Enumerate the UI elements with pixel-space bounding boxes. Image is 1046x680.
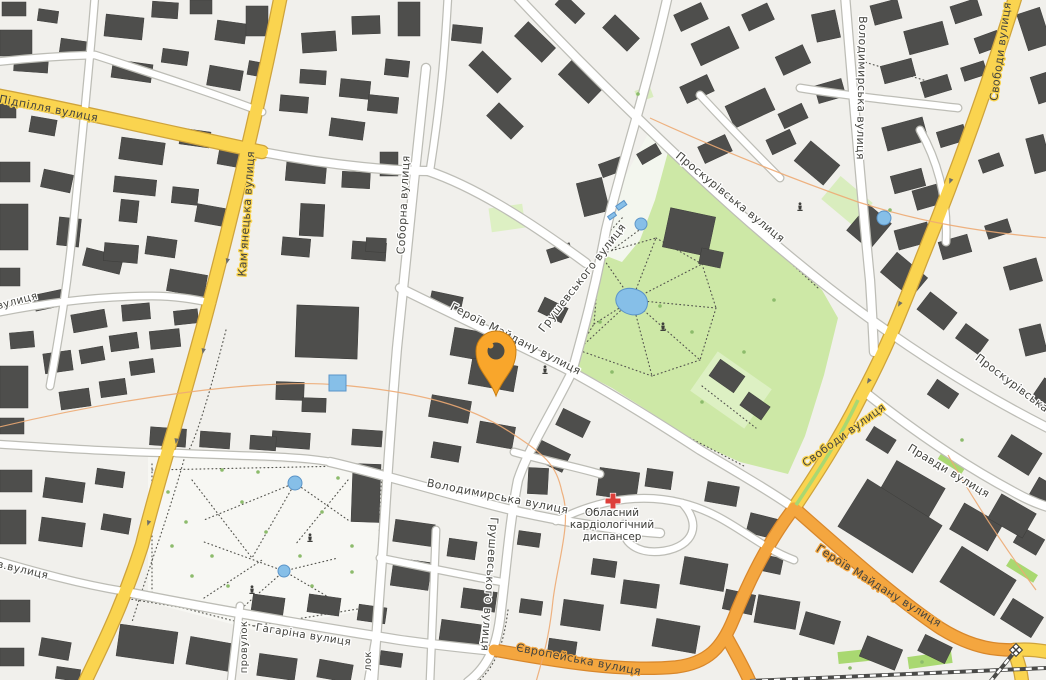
tree-icon xyxy=(610,370,614,374)
tree-icon xyxy=(960,438,964,442)
fountain xyxy=(278,565,290,577)
building xyxy=(295,305,359,359)
statue-body xyxy=(798,206,802,210)
map-canvas[interactable]: Підпілля вулицяКам'янецька вулицяСоборна… xyxy=(0,0,1046,680)
building xyxy=(190,0,212,14)
building xyxy=(215,20,247,44)
tree-icon xyxy=(226,584,230,588)
tree-icon xyxy=(700,400,704,404)
statue-body xyxy=(250,589,254,593)
building xyxy=(366,237,387,252)
street-label: провулок xyxy=(239,621,250,674)
tree-icon xyxy=(742,350,746,354)
street-label: Володимирська вулиця xyxy=(854,16,870,160)
statue-head xyxy=(251,585,254,588)
statue-base xyxy=(797,210,802,211)
building xyxy=(37,9,58,24)
building xyxy=(519,599,543,616)
building xyxy=(0,470,32,492)
fountain xyxy=(877,211,891,225)
building xyxy=(279,95,308,113)
statue-body xyxy=(543,369,547,373)
tree-icon xyxy=(848,666,852,670)
building xyxy=(517,531,541,548)
tree-icon xyxy=(690,330,694,334)
statue-head xyxy=(544,365,547,368)
building xyxy=(621,580,660,609)
statue-body xyxy=(308,537,312,541)
statue-head xyxy=(799,202,802,205)
tree-icon xyxy=(298,554,302,558)
statue-base xyxy=(307,541,312,542)
building xyxy=(451,24,483,43)
building xyxy=(104,14,144,40)
building xyxy=(173,309,198,325)
tree-icon xyxy=(658,304,662,308)
statue-base xyxy=(249,593,254,594)
building xyxy=(301,31,336,53)
tree-icon xyxy=(772,298,776,302)
statue-base xyxy=(542,373,547,374)
building xyxy=(0,204,28,250)
tree-icon xyxy=(310,584,314,588)
building xyxy=(342,171,371,188)
building xyxy=(299,203,325,236)
building xyxy=(352,16,381,35)
tree-icon xyxy=(636,92,640,96)
tree-icon xyxy=(350,570,354,574)
fountain xyxy=(288,476,302,490)
building xyxy=(246,6,268,36)
building xyxy=(0,600,30,622)
tree-icon xyxy=(320,510,324,514)
hospital-label: диспансер xyxy=(583,531,642,543)
tree-icon xyxy=(888,208,892,212)
building xyxy=(0,30,32,56)
building xyxy=(2,2,26,16)
building xyxy=(119,199,139,223)
tree-icon xyxy=(264,530,268,534)
building xyxy=(281,237,310,257)
tree-icon xyxy=(350,544,354,548)
building xyxy=(351,429,382,447)
tree-icon xyxy=(210,554,214,558)
building xyxy=(0,648,24,666)
building xyxy=(121,303,150,321)
building xyxy=(302,398,326,413)
building xyxy=(9,331,34,349)
street-label: лок xyxy=(363,651,374,671)
building xyxy=(0,510,26,544)
tree-icon xyxy=(190,574,194,578)
building xyxy=(367,94,399,113)
tree-icon xyxy=(256,470,260,474)
building xyxy=(171,187,199,206)
building xyxy=(59,388,91,410)
building xyxy=(379,651,403,668)
building xyxy=(591,558,617,577)
tree-icon xyxy=(220,468,224,472)
statue-base xyxy=(660,330,665,331)
building xyxy=(149,328,181,349)
building xyxy=(447,538,477,560)
building xyxy=(560,599,603,630)
building xyxy=(0,366,28,408)
statue-head xyxy=(662,322,665,325)
building xyxy=(398,2,420,36)
building xyxy=(151,1,178,19)
building xyxy=(103,243,138,264)
building xyxy=(250,435,277,451)
statue-head xyxy=(309,533,312,536)
building xyxy=(645,468,673,489)
building xyxy=(271,431,310,450)
pool xyxy=(329,375,346,391)
building xyxy=(145,236,177,258)
tree-icon xyxy=(184,520,188,524)
park-pond xyxy=(635,218,647,230)
building xyxy=(300,69,327,85)
building xyxy=(339,78,371,99)
tree-icon xyxy=(166,490,170,494)
tree-icon xyxy=(920,660,924,664)
building xyxy=(0,268,20,286)
marker-hole-notch[interactable] xyxy=(488,343,494,349)
building xyxy=(129,358,155,375)
statue-body xyxy=(661,326,665,330)
tree-icon xyxy=(170,544,174,548)
tree-icon xyxy=(598,320,602,324)
tree-icon xyxy=(240,500,244,504)
building xyxy=(384,59,410,77)
building xyxy=(0,162,30,182)
building xyxy=(99,378,127,397)
tree-icon xyxy=(336,476,340,480)
building xyxy=(527,467,548,494)
map-viewport[interactable]: Підпілля вулицяКам'янецька вулицяСоборна… xyxy=(0,0,1046,680)
hospital-label: кардіологічний xyxy=(570,519,654,531)
hospital-label: Обласний xyxy=(585,507,639,519)
building xyxy=(199,431,230,449)
